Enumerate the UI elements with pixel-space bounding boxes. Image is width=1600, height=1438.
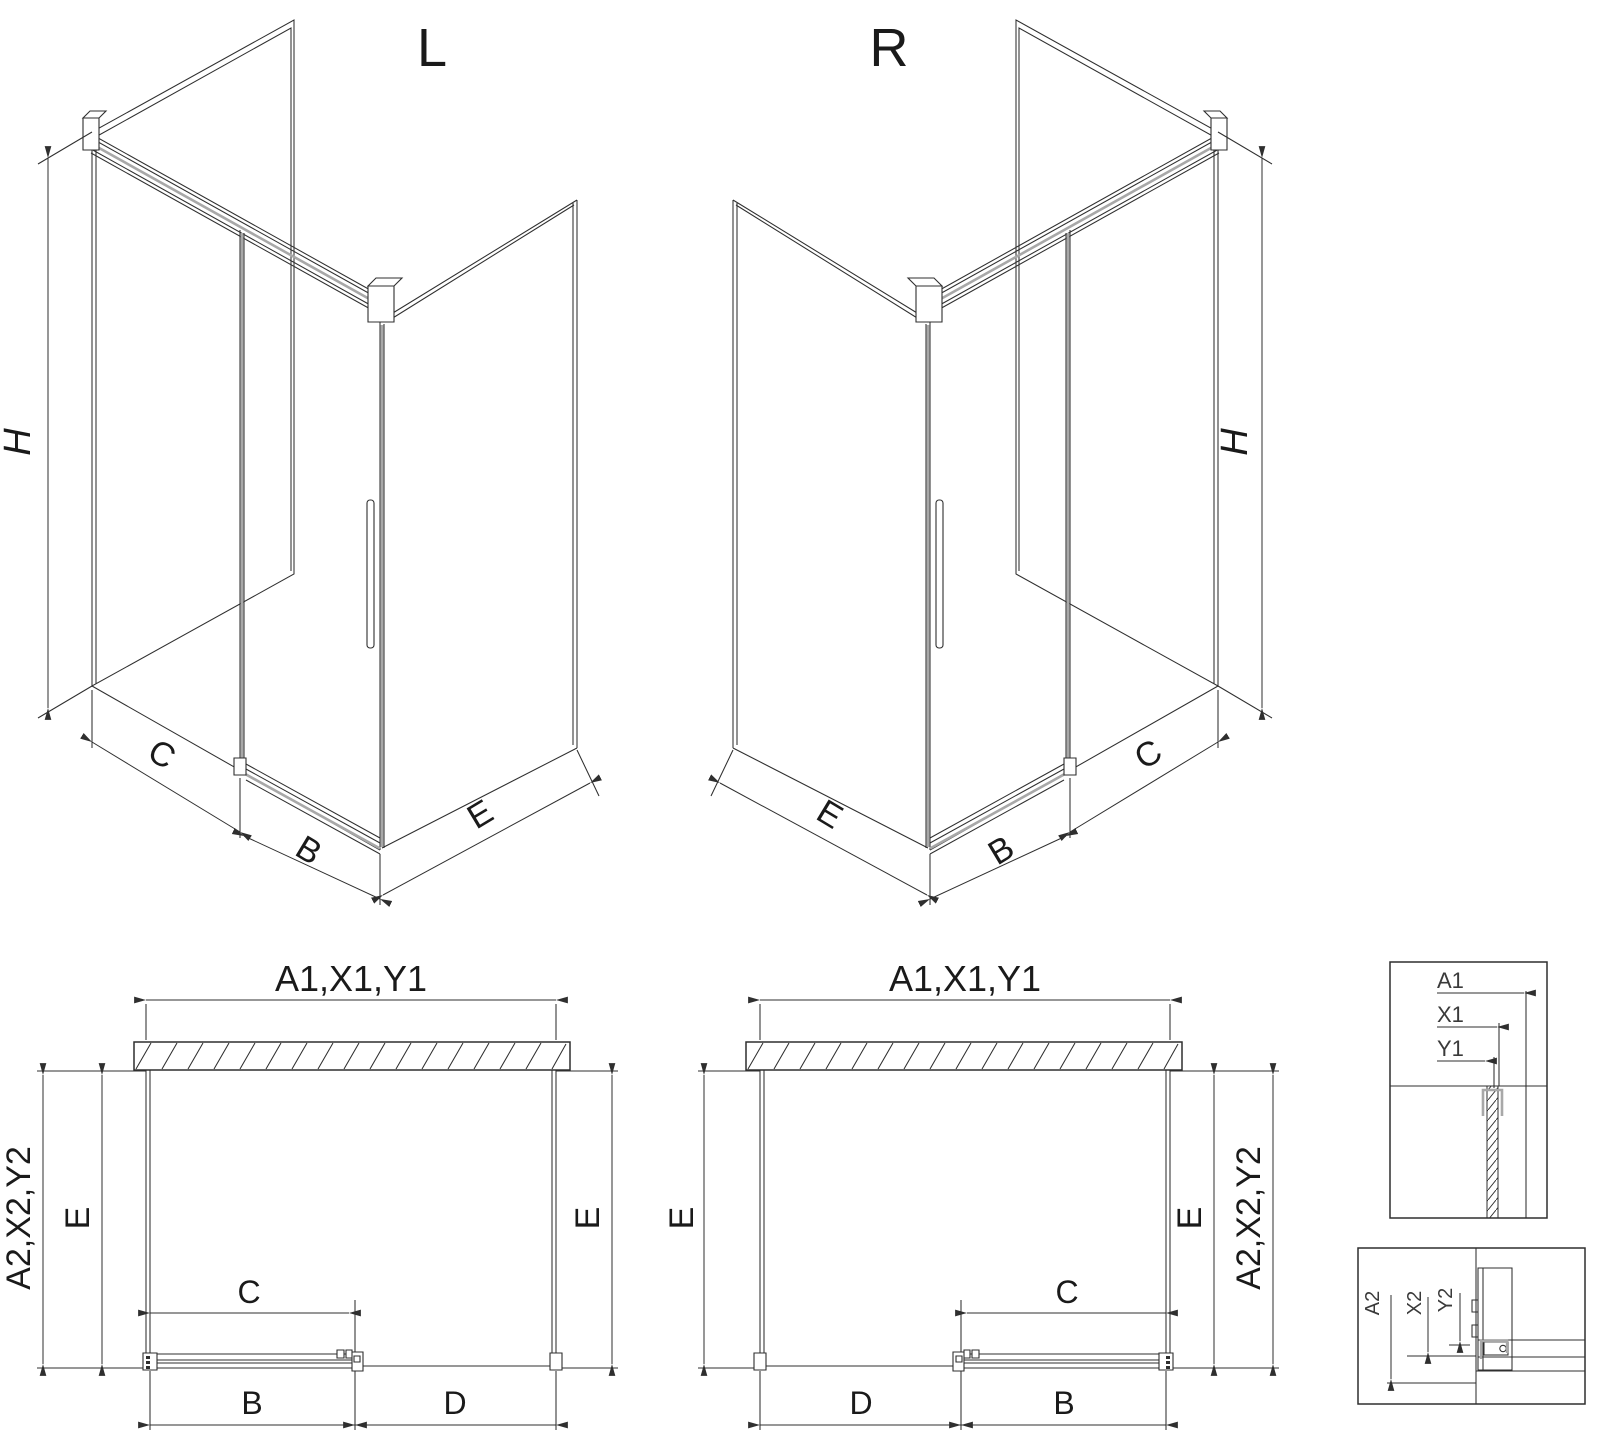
- plan-view-right: A1,X1,Y1 E E A2,X2,Y2 C D B: [663, 958, 1279, 1430]
- drawing-page: L H C B E R H C B E A1,X1,Y1 A2,X2,Y2 E …: [0, 0, 1600, 1438]
- plan-right-label-c: C: [1055, 1274, 1078, 1310]
- dim-label-h-left: H: [0, 428, 39, 456]
- detail-view-floor-profile: A2 X2 Y2: [1358, 1248, 1585, 1404]
- plan-left-geometry: [37, 1000, 618, 1430]
- carriage-accent: [1481, 1341, 1507, 1359]
- wall-section-hatched: [1487, 1086, 1498, 1218]
- detail-label-a1: A1: [1437, 968, 1464, 993]
- detail-label-x2: X2: [1404, 1291, 1426, 1315]
- plan-right-label-e-left: E: [663, 1207, 701, 1230]
- detail-top-frame: [1390, 962, 1547, 1218]
- view-title-left: L: [417, 18, 447, 78]
- iso-left-geometry: [38, 20, 599, 905]
- plan-right-label-e-inner: E: [1171, 1207, 1209, 1230]
- plan-left-label-top: A1,X1,Y1: [275, 958, 427, 999]
- detail-top-reference-lines: [1494, 991, 1526, 1218]
- iso-view-right: R H C B E: [711, 18, 1272, 905]
- detail-label-y1: Y1: [1437, 1036, 1464, 1061]
- plan-left-label-d: D: [443, 1385, 466, 1421]
- iso-right-geometry: [711, 20, 1272, 905]
- dim-label-c-right: C: [1128, 732, 1169, 777]
- wall-hatch-left: [136, 1043, 566, 1069]
- plan-left-label-e-inner: E: [59, 1207, 97, 1230]
- detail-label-x1: X1: [1437, 1002, 1464, 1027]
- plan-left-label-e-right: E: [569, 1207, 607, 1230]
- plan-left-label-b: B: [241, 1385, 262, 1421]
- floor-profile-section: [1472, 1268, 1585, 1371]
- plan-right-label-b: B: [1053, 1385, 1074, 1421]
- plan-right-label-d: D: [849, 1385, 872, 1421]
- detail-label-y2: Y2: [1435, 1288, 1457, 1312]
- dim-label-b-left: B: [289, 828, 328, 872]
- detail-view-wall-profile: A1 X1 Y1: [1390, 962, 1547, 1218]
- wall-hatch-right: [748, 1043, 1178, 1069]
- plan-left-label-a2x2y2: A2,X2,Y2: [0, 1146, 38, 1290]
- plan-right-label-top: A1,X1,Y1: [889, 958, 1041, 999]
- technical-drawing: L H C B E R H C B E A1,X1,Y1 A2,X2,Y2 E …: [0, 0, 1600, 1438]
- dim-label-e-left: E: [461, 792, 500, 836]
- dim-label-c-left: C: [141, 732, 182, 777]
- plan-left-label-c: C: [237, 1274, 260, 1310]
- view-title-right: R: [870, 18, 909, 78]
- iso-view-left: L H C B E: [0, 18, 599, 905]
- plan-view-left: A1,X1,Y1 A2,X2,Y2 E E C B D: [0, 958, 618, 1430]
- detail-label-a2: A2: [1362, 1291, 1384, 1315]
- dim-label-e-right: E: [810, 792, 849, 836]
- roller-carriage: [1484, 1342, 1508, 1355]
- detail-bottom-reference-lines: [1387, 1345, 1476, 1383]
- plan-right-label-a2x2y2: A2,X2,Y2: [1230, 1146, 1268, 1290]
- dim-label-h-right: H: [1214, 428, 1256, 456]
- roller-wheel: [1500, 1345, 1506, 1351]
- dim-label-b-right: B: [982, 828, 1021, 872]
